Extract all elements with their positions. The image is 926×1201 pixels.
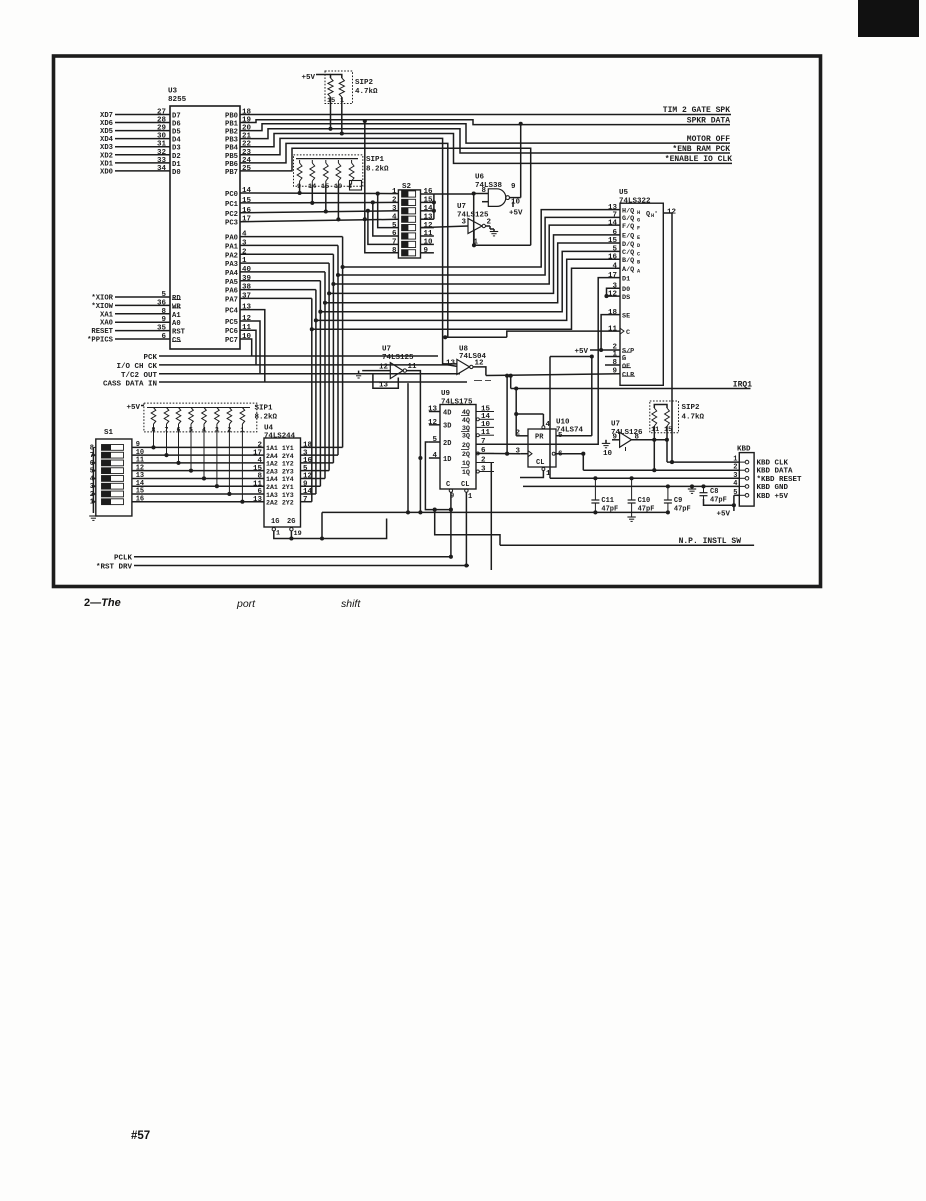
- svg-text:Q: Q: [646, 211, 650, 219]
- svg-text:11: 11: [608, 325, 618, 333]
- svg-text:F/Q: F/Q: [622, 223, 634, 231]
- svg-text:PCLK: PCLK: [114, 555, 133, 563]
- svg-text:11: 11: [651, 426, 659, 434]
- svg-text:D5: D5: [172, 129, 181, 137]
- svg-text:1: 1: [612, 351, 617, 359]
- svg-text:SIP1: SIP1: [366, 156, 385, 164]
- svg-text:PA6: PA6: [225, 288, 238, 296]
- svg-text:U7: U7: [457, 203, 466, 211]
- svg-text:34: 34: [157, 165, 167, 173]
- svg-text:PC3: PC3: [225, 220, 238, 228]
- svg-text:1: 1: [392, 188, 397, 196]
- svg-text:E: E: [637, 235, 640, 241]
- svg-text:PC4: PC4: [225, 308, 239, 316]
- svg-text:I/O CH CK: I/O CH CK: [116, 363, 157, 371]
- svg-text:+5V: +5V: [574, 348, 588, 356]
- svg-text:74LS244: 74LS244: [264, 432, 296, 440]
- svg-text:G: G: [637, 218, 640, 224]
- svg-text:S1: S1: [104, 429, 114, 437]
- svg-text:19: 19: [242, 117, 252, 125]
- svg-text:CL: CL: [536, 459, 544, 467]
- svg-text:PB5: PB5: [225, 153, 238, 161]
- svg-text:3Q: 3Q: [462, 433, 470, 441]
- svg-text:PB4: PB4: [225, 145, 239, 153]
- svg-text:16: 16: [608, 253, 618, 261]
- svg-text:A/Q: A/Q: [622, 266, 634, 274]
- svg-text:CASS DATA IN: CASS DATA IN: [103, 381, 157, 389]
- svg-text:XA1: XA1: [100, 311, 114, 319]
- svg-text:6: 6: [612, 229, 617, 237]
- svg-text:13: 13: [608, 204, 618, 212]
- svg-text:19: 19: [294, 530, 302, 538]
- svg-text:1G: 1G: [271, 518, 279, 526]
- svg-text:47pF: 47pF: [674, 506, 691, 514]
- svg-text:KBD DATA: KBD DATA: [757, 468, 794, 476]
- svg-text:DS: DS: [622, 294, 630, 302]
- svg-text:SPKR DATA: SPKR DATA: [687, 117, 730, 126]
- svg-text:C: C: [446, 481, 450, 489]
- svg-text:PR: PR: [535, 434, 544, 442]
- svg-text:13: 13: [242, 304, 252, 312]
- svg-text:7: 7: [481, 438, 486, 446]
- svg-text:U4: U4: [264, 425, 274, 433]
- svg-text:U6: U6: [475, 174, 485, 182]
- svg-text:6: 6: [161, 333, 166, 341]
- svg-text:RD: RD: [172, 295, 181, 303]
- svg-text:11: 11: [242, 324, 252, 332]
- svg-text:U10: U10: [556, 419, 570, 427]
- svg-text:21: 21: [242, 133, 252, 141]
- svg-text:4: 4: [392, 213, 397, 221]
- svg-text:SIP1: SIP1: [255, 405, 274, 413]
- svg-text:PA7: PA7: [225, 296, 238, 304]
- svg-text:15: 15: [424, 197, 434, 205]
- svg-text:1Q: 1Q: [462, 469, 470, 477]
- svg-text:XD4: XD4: [100, 136, 114, 144]
- svg-text:4: 4: [432, 452, 437, 460]
- svg-text:3: 3: [515, 448, 520, 456]
- svg-text:3: 3: [392, 205, 397, 213]
- svg-text:*XIOW: *XIOW: [91, 303, 113, 311]
- svg-text:28: 28: [157, 117, 167, 125]
- svg-text:RST: RST: [172, 329, 186, 337]
- svg-text:D2: D2: [172, 153, 181, 161]
- svg-text:12: 12: [424, 222, 434, 230]
- svg-text:port: port: [236, 598, 256, 610]
- svg-text:XD7: XD7: [100, 112, 113, 120]
- svg-text:2—The: 2—The: [84, 597, 121, 609]
- svg-text:PA1: PA1: [225, 243, 239, 251]
- svg-text:U7: U7: [611, 421, 620, 429]
- svg-text:2A1 2Y1: 2A1 2Y1: [266, 484, 294, 491]
- svg-text:8.2kΩ: 8.2kΩ: [255, 414, 278, 422]
- svg-text:U9: U9: [441, 390, 451, 398]
- svg-text:20: 20: [242, 125, 252, 133]
- svg-text:PB1: PB1: [225, 121, 239, 129]
- svg-text:4D: 4D: [443, 409, 451, 417]
- svg-text:1A3 1Y3: 1A3 1Y3: [266, 492, 294, 499]
- svg-text:36: 36: [157, 299, 167, 307]
- svg-text:PB7: PB7: [225, 169, 238, 177]
- svg-text:C10: C10: [638, 497, 651, 505]
- svg-text:*XIOR: *XIOR: [91, 295, 113, 303]
- svg-text:D/Q: D/Q: [622, 241, 634, 249]
- svg-text:XD3: XD3: [100, 144, 113, 152]
- svg-text:U7: U7: [382, 346, 391, 354]
- svg-text:3D: 3D: [443, 423, 451, 431]
- svg-text:13: 13: [428, 406, 438, 414]
- svg-text:WR: WR: [172, 303, 181, 311]
- svg-text:8: 8: [392, 247, 397, 255]
- svg-text:30: 30: [157, 133, 167, 141]
- svg-text:47pF: 47pF: [710, 497, 727, 505]
- svg-text:KBD CLK: KBD CLK: [757, 460, 789, 468]
- svg-text:15: 15: [608, 237, 618, 245]
- svg-text:7: 7: [303, 496, 308, 504]
- svg-text:5: 5: [392, 222, 397, 230]
- svg-text:B: B: [637, 259, 640, 265]
- svg-text:OE: OE: [622, 363, 630, 371]
- svg-text:9: 9: [424, 247, 429, 255]
- svg-text:9: 9: [161, 316, 166, 324]
- svg-text:1A2 1Y2: 1A2 1Y2: [266, 461, 294, 468]
- svg-text:9: 9: [511, 183, 516, 191]
- svg-text:3: 3: [481, 465, 486, 473]
- svg-text:D1: D1: [622, 275, 630, 283]
- svg-text:11: 11: [481, 429, 491, 437]
- svg-text:PA4: PA4: [225, 270, 239, 278]
- svg-text:SIP2: SIP2: [682, 404, 701, 412]
- svg-text:2: 2: [242, 248, 247, 256]
- svg-text:+5V: +5V: [301, 74, 315, 82]
- svg-text:U5: U5: [619, 189, 629, 197]
- svg-text:PA5: PA5: [225, 279, 238, 287]
- svg-text:33: 33: [157, 157, 167, 165]
- svg-text:4: 4: [242, 231, 247, 239]
- svg-text:PB2: PB2: [225, 129, 238, 137]
- svg-text:*KBD RESET: *KBD RESET: [757, 476, 803, 484]
- svg-text:+5V: +5V: [716, 511, 730, 519]
- svg-text:22: 22: [242, 141, 252, 149]
- svg-text:*ENB RAM PCK: *ENB RAM PCK: [672, 145, 730, 154]
- svg-text:2A4 2Y4: 2A4 2Y4: [266, 453, 294, 460]
- svg-text:MOTOR OFF: MOTOR OFF: [687, 135, 730, 144]
- svg-text:14: 14: [242, 187, 252, 195]
- svg-text:XD5: XD5: [100, 128, 113, 136]
- svg-text:KBD +5V: KBD +5V: [757, 493, 789, 501]
- svg-text:XA0: XA0: [100, 320, 113, 328]
- svg-text:D4: D4: [172, 137, 181, 145]
- svg-text:2A2 2Y2: 2A2 2Y2: [266, 500, 294, 507]
- svg-text:14: 14: [608, 219, 618, 227]
- svg-text:1: 1: [276, 530, 280, 538]
- svg-text:1: 1: [242, 257, 247, 265]
- svg-text:6: 6: [558, 451, 563, 459]
- svg-text:D: D: [637, 243, 640, 249]
- svg-text:10: 10: [603, 450, 613, 458]
- svg-text:PA0: PA0: [225, 235, 238, 243]
- svg-text:RESET: RESET: [91, 328, 113, 336]
- svg-text:1: 1: [473, 239, 478, 247]
- svg-text:H/Q: H/Q: [622, 207, 634, 215]
- svg-text:37: 37: [242, 292, 251, 300]
- svg-text:SIP2: SIP2: [355, 79, 374, 87]
- svg-text:5: 5: [161, 291, 166, 299]
- svg-text:5: 5: [432, 436, 437, 444]
- svg-text:35: 35: [157, 325, 167, 333]
- svg-text:74LS322: 74LS322: [619, 197, 651, 205]
- svg-text:PB3: PB3: [225, 137, 238, 145]
- svg-text:*RST DRV: *RST DRV: [96, 564, 133, 572]
- svg-text:T/C2 OUT: T/C2 OUT: [121, 372, 158, 380]
- svg-text:PC1: PC1: [225, 201, 239, 209]
- svg-text:PA2: PA2: [225, 252, 238, 260]
- svg-text:C: C: [626, 329, 630, 337]
- svg-text:3: 3: [612, 283, 617, 291]
- svg-text:C/Q: C/Q: [622, 249, 634, 257]
- svg-text:4: 4: [612, 263, 617, 271]
- svg-text:F: F: [637, 225, 640, 231]
- svg-text:PC0: PC0: [225, 191, 238, 199]
- svg-text:': ': [654, 211, 658, 219]
- svg-text:13: 13: [424, 213, 434, 221]
- svg-text:1D: 1D: [443, 456, 451, 464]
- svg-text:PA3: PA3: [225, 261, 238, 269]
- svg-text:40: 40: [242, 266, 252, 274]
- svg-text:10: 10: [242, 333, 252, 341]
- svg-text:29: 29: [157, 125, 167, 133]
- svg-text:3: 3: [242, 239, 247, 247]
- svg-text:A0: A0: [172, 320, 181, 328]
- svg-text:D7: D7: [172, 113, 181, 121]
- svg-text:2G: 2G: [287, 518, 295, 526]
- svg-text:38: 38: [242, 284, 252, 292]
- svg-text:39: 39: [242, 275, 252, 283]
- svg-text:32: 32: [157, 149, 167, 157]
- svg-text:15: 15: [242, 197, 252, 205]
- svg-text:3: 3: [461, 219, 466, 227]
- svg-text:D0: D0: [622, 286, 630, 294]
- svg-text:7: 7: [392, 239, 397, 247]
- svg-text:8: 8: [481, 187, 486, 195]
- svg-text:1Q: 1Q: [462, 460, 470, 468]
- svg-text:8255: 8255: [168, 96, 187, 104]
- svg-text:C: C: [637, 252, 640, 258]
- svg-text:B/Q: B/Q: [622, 257, 634, 265]
- svg-text:XD0: XD0: [100, 168, 113, 176]
- svg-text:*ENABLE IO CLK: *ENABLE IO CLK: [665, 155, 732, 164]
- svg-text:C9: C9: [674, 497, 682, 505]
- svg-text:C11: C11: [601, 497, 614, 505]
- svg-text:1A4 1Y4: 1A4 1Y4: [266, 476, 294, 483]
- svg-text:11: 11: [424, 230, 434, 238]
- svg-text:4.7kΩ: 4.7kΩ: [682, 414, 705, 422]
- svg-text:12: 12: [428, 419, 438, 427]
- svg-text:G: G: [622, 354, 626, 362]
- svg-text:4Q: 4Q: [462, 417, 470, 425]
- svg-text:14: 14: [424, 205, 434, 213]
- svg-text:PC7: PC7: [225, 337, 238, 345]
- svg-text:17: 17: [242, 216, 251, 224]
- svg-text:2: 2: [392, 197, 397, 205]
- svg-text:1: 1: [468, 493, 472, 501]
- svg-text:12: 12: [242, 315, 252, 323]
- svg-text:1A1 1Y1: 1A1 1Y1: [266, 445, 294, 452]
- svg-text:H: H: [637, 210, 640, 216]
- svg-text:A1: A1: [172, 312, 181, 320]
- svg-text:XD2: XD2: [100, 152, 113, 160]
- svg-text:XD6: XD6: [100, 120, 113, 128]
- svg-text:8: 8: [161, 308, 166, 316]
- svg-text:PB0: PB0: [225, 113, 238, 121]
- svg-text:U3: U3: [168, 88, 178, 96]
- svg-text:2A3 2Y3: 2A3 2Y3: [266, 468, 294, 475]
- svg-text:25: 25: [242, 165, 252, 173]
- svg-text:shift: shift: [341, 598, 361, 610]
- svg-text:CL: CL: [461, 481, 469, 489]
- svg-text:24: 24: [242, 157, 252, 165]
- svg-text:#57: #57: [131, 1130, 150, 1142]
- svg-text:D6: D6: [172, 121, 181, 129]
- svg-text:5: 5: [612, 246, 617, 254]
- svg-text:PC6: PC6: [225, 328, 238, 336]
- svg-text:+5V: +5V: [126, 404, 140, 412]
- svg-text:E/Q: E/Q: [622, 233, 634, 241]
- svg-text:17: 17: [608, 272, 617, 280]
- svg-text:D1: D1: [172, 161, 181, 169]
- svg-text:2Q: 2Q: [462, 451, 470, 459]
- svg-text:6: 6: [392, 230, 397, 238]
- svg-text:XD1: XD1: [100, 160, 114, 168]
- svg-text:47pF: 47pF: [601, 506, 618, 514]
- svg-text:PCK: PCK: [143, 354, 157, 362]
- svg-text:14: 14: [481, 413, 491, 421]
- svg-text:PC2: PC2: [225, 211, 238, 219]
- svg-text:TIM 2 GATE SPK: TIM 2 GATE SPK: [663, 106, 730, 115]
- svg-text:18: 18: [242, 109, 252, 117]
- svg-text:CS: CS: [172, 337, 181, 345]
- svg-text:23: 23: [242, 149, 252, 157]
- svg-text:47pF: 47pF: [638, 506, 655, 514]
- svg-text:27: 27: [157, 109, 166, 117]
- svg-text:D3: D3: [172, 145, 181, 153]
- svg-text:PC5: PC5: [225, 319, 238, 327]
- svg-text:15: 15: [481, 405, 491, 413]
- svg-text:16: 16: [424, 188, 434, 196]
- svg-text:D0: D0: [172, 169, 181, 177]
- svg-text:8: 8: [612, 359, 617, 367]
- svg-text:10: 10: [424, 239, 434, 247]
- svg-text:12: 12: [608, 290, 618, 298]
- svg-text:PB6: PB6: [225, 161, 238, 169]
- svg-text:CLR: CLR: [622, 371, 635, 379]
- svg-text:10: 10: [481, 421, 491, 429]
- svg-text:2: 2: [481, 456, 486, 464]
- svg-text:74LS125: 74LS125: [382, 354, 414, 362]
- svg-text:31: 31: [157, 141, 167, 149]
- svg-text:IRQ1: IRQ1: [733, 381, 752, 390]
- svg-text:2D: 2D: [443, 440, 451, 448]
- svg-text:2Q: 2Q: [462, 442, 470, 450]
- svg-text:SE: SE: [622, 312, 630, 320]
- svg-text:8.2kΩ: 8.2kΩ: [366, 166, 389, 174]
- svg-text:13: 13: [253, 496, 263, 504]
- svg-text:C8: C8: [710, 488, 718, 496]
- svg-text:16: 16: [242, 207, 252, 215]
- svg-text:15: 15: [664, 426, 672, 434]
- svg-text:N.P. INSTL SW: N.P. INSTL SW: [679, 537, 742, 546]
- svg-text:*PPICS: *PPICS: [87, 337, 114, 345]
- svg-text:KBD GND: KBD GND: [757, 484, 789, 492]
- svg-text:18: 18: [608, 309, 618, 317]
- svg-text:4.7kΩ: 4.7kΩ: [355, 88, 378, 96]
- svg-text:+5V: +5V: [509, 210, 523, 218]
